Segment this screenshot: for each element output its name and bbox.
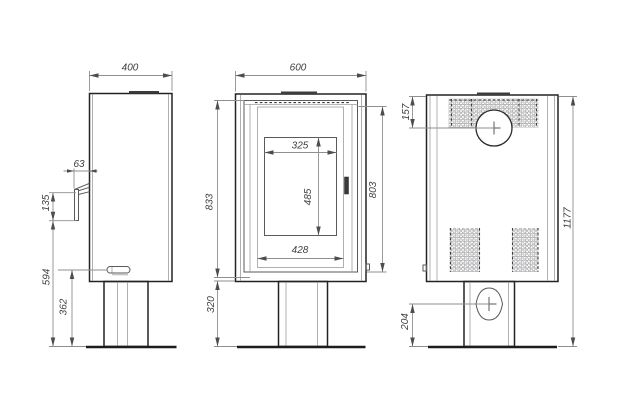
side-panel-edges <box>93 95 169 282</box>
dim-base-height: 320 <box>206 281 237 347</box>
dim-door-height: 803 <box>359 107 387 273</box>
dim-body-height: 833 <box>205 101 251 278</box>
dim-door-panel-width-label: 428 <box>292 245 309 256</box>
dim-front-width-label: 600 <box>290 63 307 74</box>
rear-view <box>423 93 558 348</box>
front-view <box>236 92 370 348</box>
dim-inlet-from-floor: 204 <box>400 304 489 347</box>
door-latch <box>345 177 349 194</box>
dim-handle-from-floor-label: 594 <box>42 268 53 285</box>
front-top-lip <box>281 92 317 95</box>
side-base-column-edges <box>118 282 128 346</box>
dim-handle-length-label: 135 <box>41 194 52 211</box>
dim-total-height: 1177 <box>558 97 577 347</box>
dim-glass-width-label: 325 <box>292 141 309 152</box>
ash-drawer-handle <box>107 267 130 275</box>
door-handle-bracket <box>75 183 90 220</box>
side-body-outline <box>90 94 173 282</box>
dim-handle-from-floor: 594 <box>42 221 87 347</box>
dim-glass-height-label: 485 <box>303 188 314 205</box>
vent-grille-left <box>450 228 481 272</box>
dim-door-panel-width: 428 <box>258 245 344 259</box>
rear-top-lip <box>477 93 510 96</box>
dim-body-height-label: 833 <box>205 193 216 210</box>
side-top-lip <box>129 91 159 94</box>
front-base-column-edges <box>286 282 318 346</box>
dim-handle-depth-label: 63 <box>73 159 85 170</box>
dim-glass-width: 325 <box>265 141 337 153</box>
dim-flue-from-top-label: 157 <box>401 103 412 120</box>
dim-base-height-label: 320 <box>206 296 217 313</box>
dim-total-height-label: 1177 <box>563 207 574 229</box>
rear-base-column-edges <box>470 282 509 346</box>
dim-inlet-from-floor-label: 204 <box>400 313 411 331</box>
dim-latch-from-floor-label: 362 <box>59 298 70 315</box>
dim-front-width: 600 <box>236 63 367 92</box>
side-view <box>75 91 177 347</box>
side-base-column <box>104 282 148 347</box>
stove-drawing: 400 63 135 594 362 <box>0 0 620 413</box>
technical-drawing-canvas: 400 63 135 594 362 <box>0 0 620 413</box>
dim-side-width-label: 400 <box>122 63 139 74</box>
door-inner-panel <box>258 107 344 268</box>
dim-door-height-label: 803 <box>368 181 379 198</box>
vent-grille-right <box>512 228 539 272</box>
dim-side-width: 400 <box>90 63 173 92</box>
rear-base-column <box>464 282 515 347</box>
dim-handle-length: 135 <box>41 193 76 221</box>
